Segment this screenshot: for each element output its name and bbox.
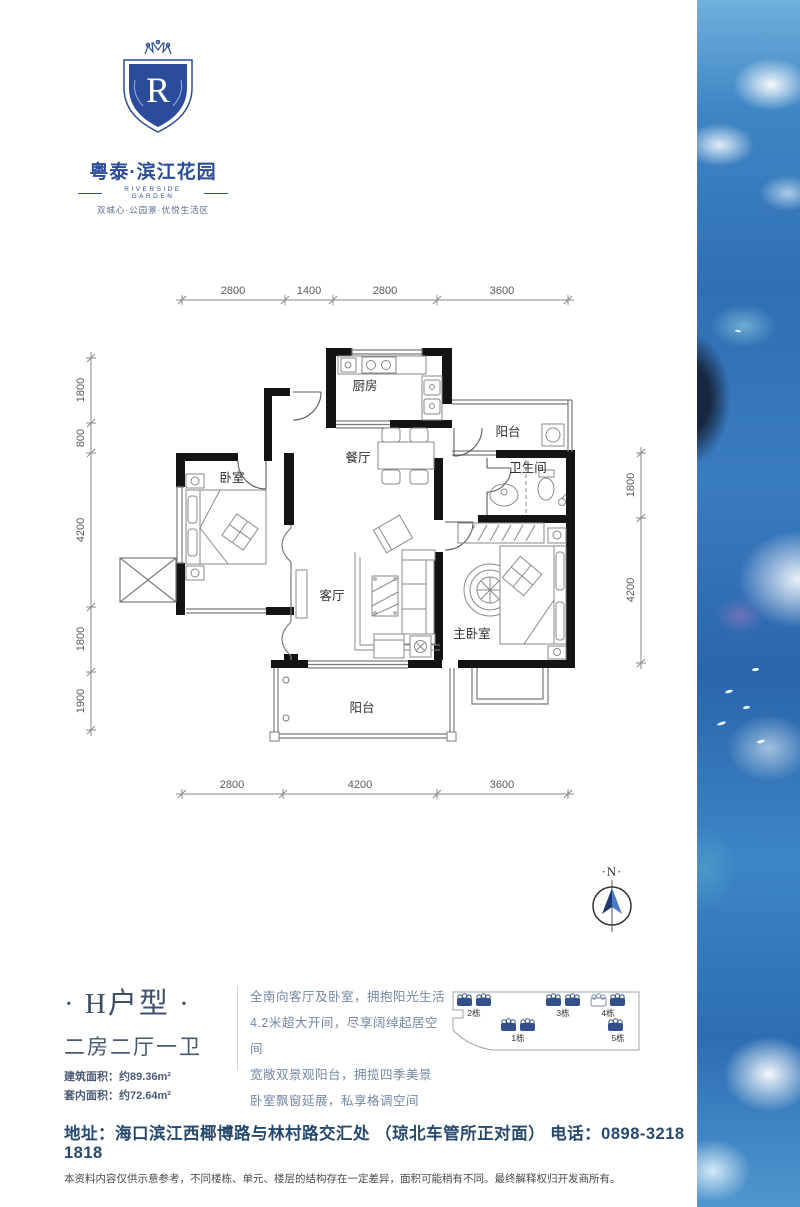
building-label-5: 5栋 bbox=[611, 1033, 625, 1043]
label-balcony-top: 阳台 bbox=[495, 424, 520, 439]
disclaimer-text: 本资料内容仅供示意参考，不同楼栋、单元、楼层的结构存在一定差异，面积可能稍有不同… bbox=[64, 1171, 692, 1186]
rule-left bbox=[78, 193, 102, 194]
dim-top-3: 2800 bbox=[373, 285, 397, 297]
footer: 地址：海口滨江西椰博路与林村路交汇处 （琼北车管所正对面） 电话：0898-32… bbox=[64, 1120, 692, 1186]
master-wardrobe bbox=[458, 523, 544, 543]
unit-info: · H户型 · 二房二厅一卫 建筑面积：约89.36m² 套内面积：约72.64… bbox=[64, 980, 229, 1103]
dim-right-2: 4200 bbox=[625, 578, 637, 602]
unit-net-area: 套内面积：约72.64m² bbox=[64, 1087, 229, 1103]
compass-icon bbox=[588, 880, 636, 932]
washing-machine bbox=[542, 424, 564, 446]
label-kitchen: 厨房 bbox=[352, 378, 377, 393]
brand-name-cn: 粤泰·滨江花园 bbox=[78, 157, 228, 184]
unit-title: · H户型 · bbox=[64, 980, 229, 1022]
label-bathroom: 卫生间 bbox=[509, 461, 547, 475]
brand-logo: R 粤泰·滨江花园 RIVERSIDE GARDEN 双城心·公园景·优悦生活区 bbox=[78, 40, 228, 216]
brand-name-en-text: RIVERSIDE GARDEN bbox=[106, 186, 201, 200]
dim-right-1: 1800 bbox=[625, 473, 637, 497]
selling-point: 宽敞双景观阳台，拥揽四季美景 bbox=[250, 1062, 445, 1088]
selling-point: 4.2米超大开间，尽享阔绰起居空间 bbox=[250, 1010, 445, 1062]
label-balcony-bottom: 阳台 bbox=[349, 700, 374, 715]
label-living: 客厅 bbox=[319, 588, 344, 603]
compass: ·N· bbox=[588, 864, 636, 937]
ac-platform-left bbox=[120, 558, 176, 602]
unit-gross-area: 建筑面积：约89.36m² bbox=[64, 1068, 229, 1084]
siteplan-map: 2栋 3栋 4栋 1栋 5栋 bbox=[448, 988, 644, 1064]
floorplan: 2800 1400 2800 3600 2800 4200 3600 1800 … bbox=[60, 270, 660, 810]
compass-north-label: ·N· bbox=[588, 864, 636, 880]
fish-icon bbox=[752, 668, 759, 672]
dim-left-1: 1800 bbox=[75, 378, 87, 402]
dim-left-5: 1900 bbox=[75, 689, 87, 713]
label-master: 主卧室 bbox=[453, 626, 491, 641]
fish-icon bbox=[725, 689, 734, 694]
dim-left-3: 4200 bbox=[75, 518, 87, 542]
doors bbox=[238, 392, 511, 550]
selling-points: 全南向客厅及卧室，拥抱阳光生活 4.2米超大开间，尽享阔绰起居空间 宽敞双景观阳… bbox=[250, 984, 445, 1114]
label-bedroom: 卧室 bbox=[219, 470, 244, 485]
building-label-1: 1栋 bbox=[511, 1033, 525, 1043]
fish-icon bbox=[757, 739, 765, 744]
selling-point: 全南向客厅及卧室，拥抱阳光生活 bbox=[250, 984, 445, 1010]
logo-shield-icon: R bbox=[98, 40, 208, 148]
label-dining: 餐厅 bbox=[345, 450, 370, 465]
living-furniture bbox=[296, 515, 440, 658]
dim-bottom-1: 2800 bbox=[220, 779, 244, 791]
bedroom-bed bbox=[186, 474, 266, 580]
building-label-3: 3栋 bbox=[556, 1008, 570, 1018]
logo-monogram: R bbox=[146, 70, 170, 110]
dim-left-2: 800 bbox=[75, 429, 87, 447]
rule-right bbox=[204, 193, 228, 194]
dining-table bbox=[378, 428, 434, 484]
dim-left-4: 1800 bbox=[75, 627, 87, 651]
unit-layout: 二房二厅一卫 bbox=[64, 1031, 229, 1061]
dim-bottom-2: 4200 bbox=[348, 779, 372, 791]
selling-point: 卧室飘窗延展，私享格调空间 bbox=[250, 1088, 445, 1114]
address-line: 地址：海口滨江西椰博路与林村路交汇处 （琼北车管所正对面） 电话：0898-32… bbox=[64, 1120, 692, 1163]
fish-icon bbox=[743, 705, 750, 709]
building-label-2: 2栋 bbox=[467, 1008, 481, 1018]
brand-name-en: RIVERSIDE GARDEN bbox=[78, 186, 228, 200]
master-bed bbox=[500, 528, 566, 659]
ocean-artwork bbox=[697, 0, 800, 1207]
dim-top-4: 3600 bbox=[490, 285, 514, 297]
fish-icon bbox=[717, 721, 726, 727]
fish-icon bbox=[735, 329, 741, 332]
dim-top-2: 1400 bbox=[297, 285, 321, 297]
dim-bottom-3: 3600 bbox=[490, 779, 514, 791]
vertical-divider bbox=[237, 986, 238, 1070]
poster-page: R 粤泰·滨江花园 RIVERSIDE GARDEN 双城心·公园景·优悦生活区 bbox=[0, 0, 800, 1207]
dim-top-1: 2800 bbox=[221, 285, 245, 297]
building-label-4: 4栋 bbox=[601, 1008, 615, 1018]
brand-tagline: 双城心·公园景·优悦生活区 bbox=[78, 204, 228, 216]
